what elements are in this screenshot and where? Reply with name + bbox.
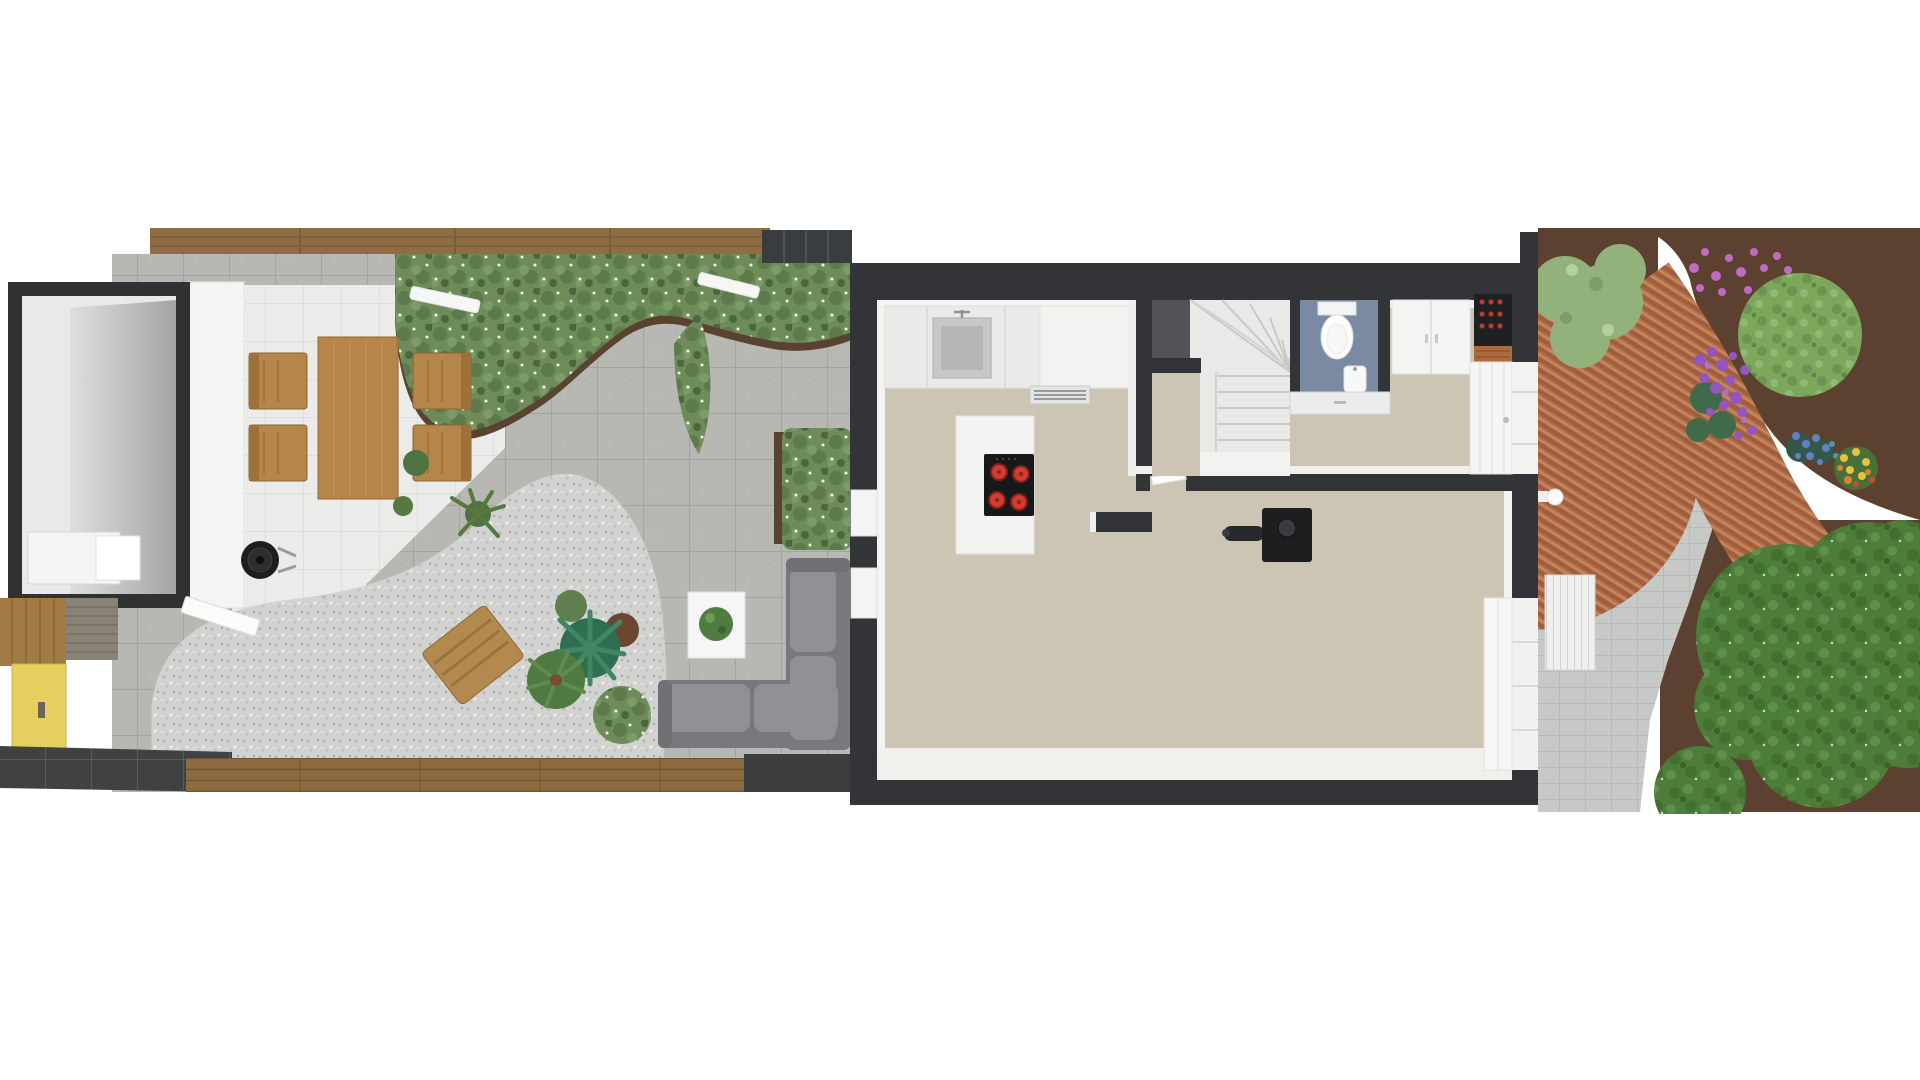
- kitchen-island: [956, 416, 1034, 554]
- hall-floor-lower: [1152, 373, 1200, 476]
- shed-cabinet-top: [96, 536, 140, 580]
- garden-wall-cap: [762, 230, 852, 263]
- toilet-cistern: [1318, 302, 1356, 315]
- garden-shed: [8, 282, 260, 636]
- wine-bottles: [1480, 300, 1503, 329]
- bottom-step: [1200, 452, 1290, 476]
- house: [850, 232, 1540, 805]
- sofa-armrest: [658, 680, 672, 748]
- stove-flue-cap: [1278, 519, 1296, 537]
- wall-face-left: [877, 300, 885, 748]
- deck-edge: [186, 758, 744, 792]
- dining-table: [318, 337, 398, 499]
- yellow-orange-flowers: [1834, 446, 1878, 490]
- wall-stub-top-right: [1520, 232, 1540, 263]
- table-plant: [699, 607, 733, 641]
- front-door-opening: [1512, 362, 1538, 474]
- interior-wall-horizontal-b: [1186, 474, 1512, 491]
- interior-wall-vertical: [1136, 300, 1152, 476]
- floorplan-stage: [0, 0, 1920, 1080]
- gate-handle: [38, 702, 45, 718]
- basin-faucet: [1353, 367, 1357, 371]
- coffee-table: [688, 592, 745, 658]
- stub-wall: [1096, 512, 1152, 532]
- grass-tuft: [403, 450, 429, 476]
- garden-window-opening: [1512, 598, 1538, 770]
- interior-wall-horizontal-a: [1136, 474, 1150, 491]
- stove-pipe: [1224, 526, 1264, 541]
- vanity-handle: [1334, 401, 1346, 404]
- leafy-plant: [527, 651, 585, 709]
- round-tree: [1738, 273, 1862, 397]
- stair-void: [1152, 300, 1190, 358]
- wood-panel: [0, 598, 66, 666]
- kitchen-window: [851, 568, 877, 618]
- timber-fence: [150, 228, 770, 254]
- grass-tuft: [393, 496, 413, 516]
- round-shrub: [593, 686, 651, 744]
- copper-shelf: [1474, 346, 1512, 362]
- sink-basin: [941, 326, 983, 370]
- dark-step: [744, 754, 852, 792]
- door-knob: [1503, 417, 1509, 423]
- toilet-room: [1290, 300, 1390, 414]
- wall-face-inner: [1128, 300, 1136, 476]
- kitchen-window: [851, 490, 877, 536]
- tall-cabinet: [1040, 306, 1135, 388]
- back-garden: [0, 228, 852, 792]
- baseboard-bottom: [877, 748, 1512, 780]
- small-bush: [555, 590, 587, 622]
- shed-outer-wall-face: [188, 282, 244, 608]
- sofa-armrest: [786, 558, 850, 572]
- radiator-bench: [1545, 575, 1595, 670]
- stair-wall: [1141, 358, 1201, 373]
- hedge-strip: [782, 428, 852, 550]
- rain-pipe: [1547, 489, 1563, 505]
- staircase: [1141, 300, 1290, 476]
- floorplan-canvas: [0, 0, 1920, 1080]
